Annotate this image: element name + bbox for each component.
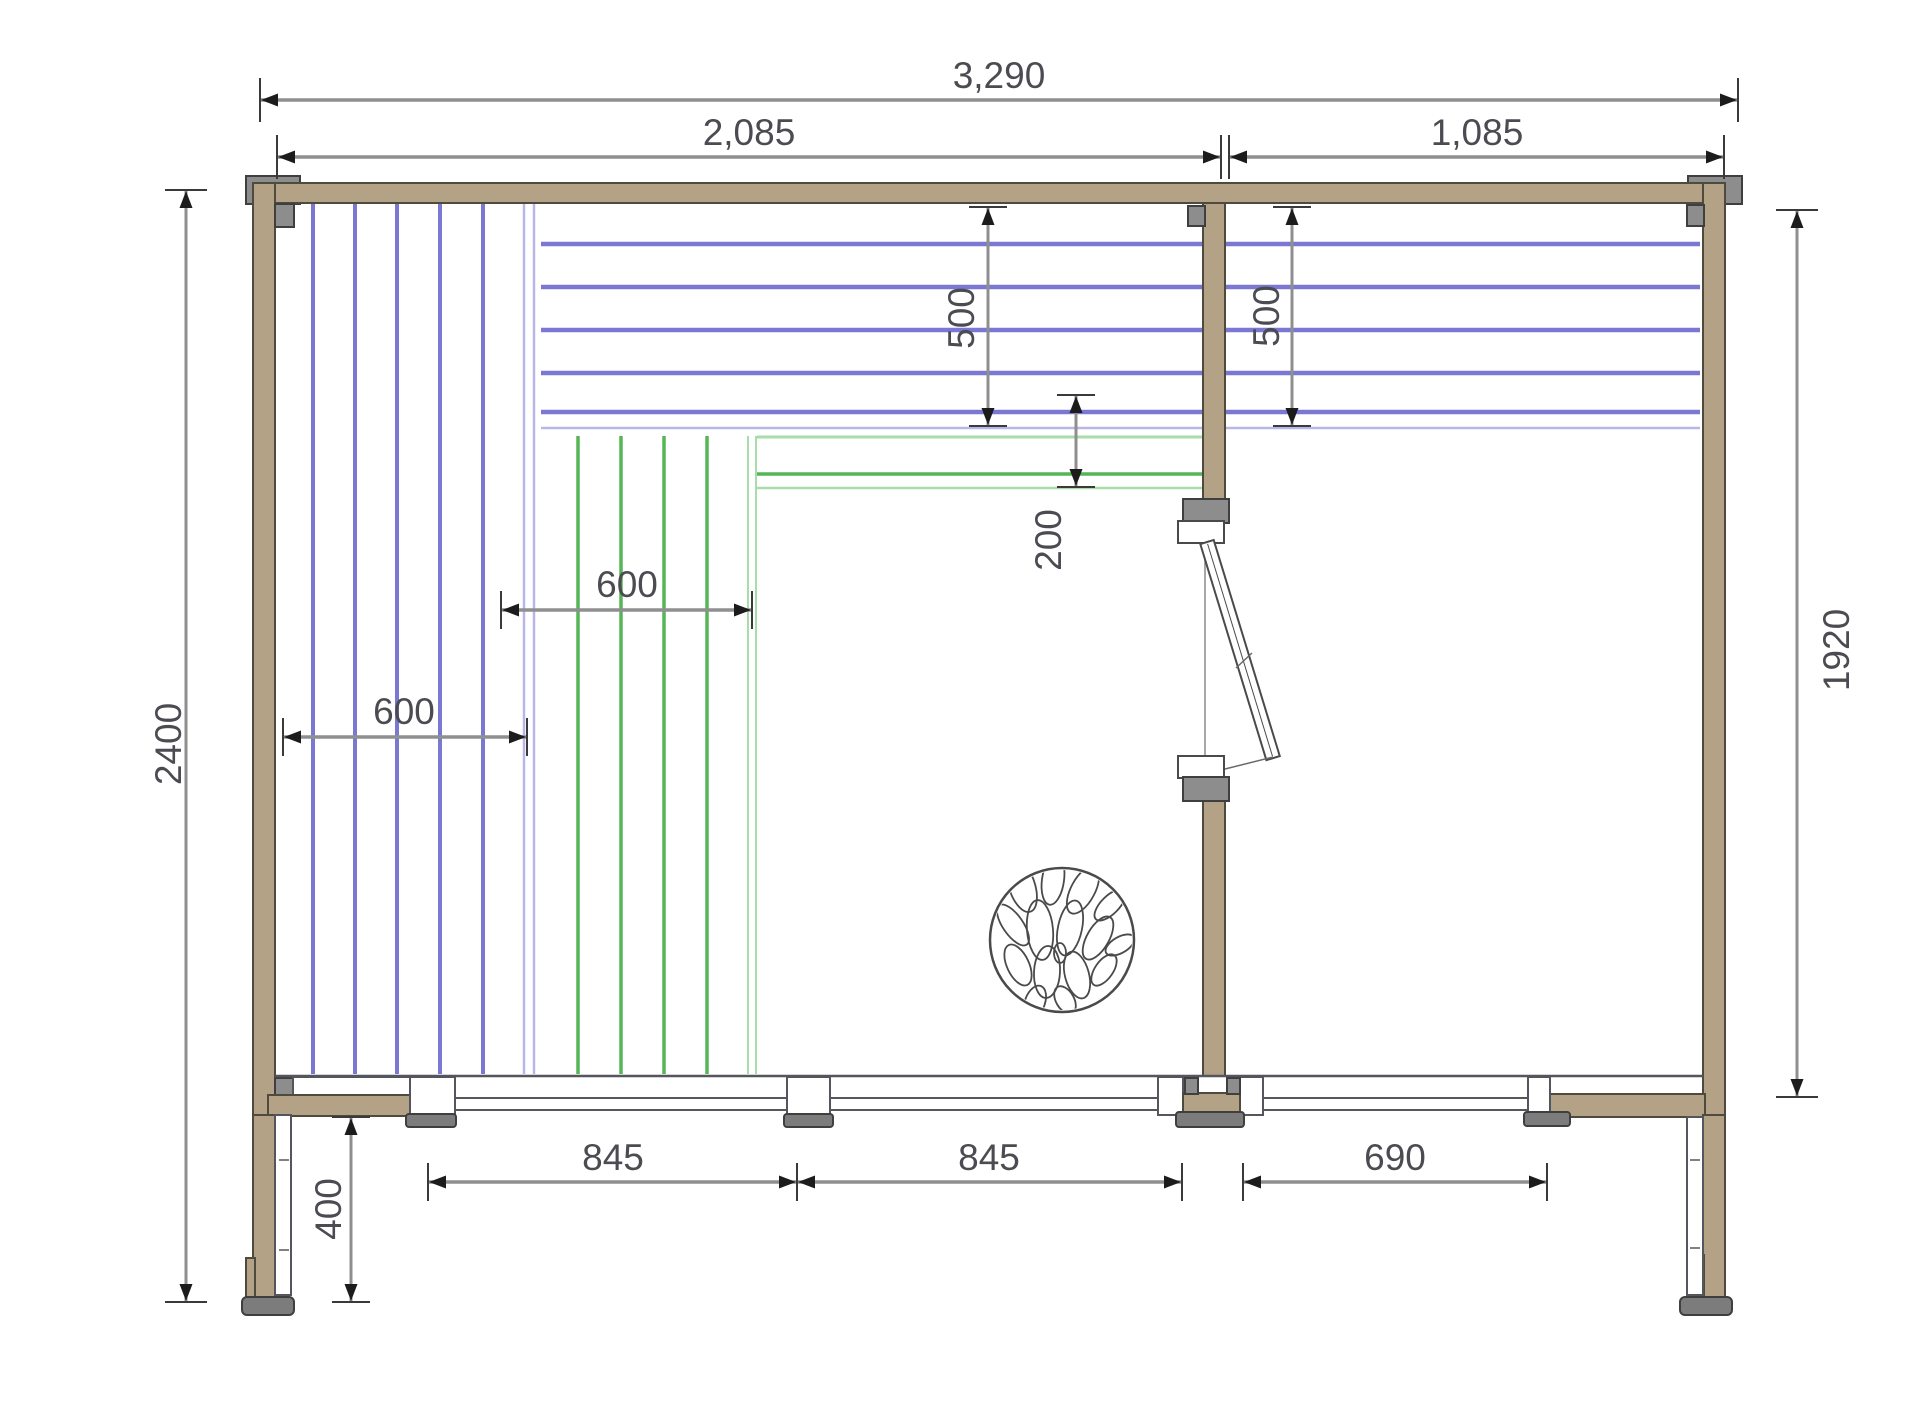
right-foundation-leg — [1703, 1115, 1725, 1300]
dimension-arrowhead — [1791, 211, 1804, 228]
post-partition-top — [1188, 206, 1205, 226]
dimension-arrowhead — [779, 1176, 796, 1189]
dimension-arrowhead — [1286, 408, 1299, 425]
window-post-cap — [406, 1114, 456, 1127]
dimension-arrowhead — [982, 408, 995, 425]
dim-label-total-height: 2400 — [148, 703, 189, 785]
dimension-arrowhead — [180, 1284, 193, 1301]
dimension-arrowhead — [345, 1118, 358, 1135]
post-partition-bottom-right — [1227, 1078, 1240, 1094]
dimension-arrowhead — [1203, 151, 1220, 164]
post-partition-bottom-left — [1185, 1078, 1198, 1094]
floor-plan-drawing: 3,290 2,085 1,085 2400 1920 500 500 200 … — [0, 0, 1920, 1421]
dimension-arrowhead — [798, 1176, 815, 1189]
left-leg-step — [246, 1258, 255, 1300]
bottom-wall-windows — [242, 1076, 1732, 1315]
door-swing-chord — [1217, 757, 1273, 771]
dim-label-right-height: 1920 — [1816, 609, 1857, 691]
door-leaf — [1200, 540, 1279, 760]
heater-stones-circle — [990, 854, 1138, 1022]
dim-label-win-690: 690 — [1364, 1137, 1426, 1178]
dimension-right-height-1920 — [1776, 210, 1818, 1097]
partition-wall-upper — [1203, 203, 1225, 500]
left-foundation-leg — [253, 1115, 275, 1300]
door-frame-top — [1178, 521, 1224, 543]
post-top-right-inner — [1687, 205, 1704, 226]
dimension-arrowhead — [345, 1284, 358, 1301]
wall-structure — [246, 176, 1742, 1115]
dimension-arrowhead — [278, 151, 295, 164]
right-leg-channel — [1687, 1117, 1703, 1295]
partition-wall-lower — [1203, 800, 1225, 1076]
dim-label-base-400: 400 — [308, 1178, 349, 1240]
dimension-arrowhead — [284, 731, 301, 744]
post-bottom-left-inner — [275, 1078, 293, 1096]
dimension-arrowhead — [1706, 151, 1723, 164]
dimension-arrowhead — [1244, 1176, 1261, 1189]
bottom-sill-right — [1550, 1094, 1705, 1117]
dimension-arrowhead — [1164, 1176, 1181, 1189]
dim-label-right-width: 1,085 — [1431, 112, 1524, 153]
right-leg-foot — [1680, 1297, 1732, 1315]
dimension-arrowhead — [180, 191, 193, 208]
dimension-arrowhead — [1070, 396, 1083, 413]
dimension-arrowhead — [261, 94, 278, 107]
dim-label-overall-width: 3,290 — [953, 55, 1046, 96]
left-leg-foot — [242, 1297, 294, 1315]
right-wall — [1703, 183, 1725, 1115]
door-frame-bottom — [1178, 756, 1224, 778]
dimension-arrowhead — [982, 208, 995, 225]
window-post — [787, 1077, 830, 1117]
left-leg-channel — [275, 1115, 291, 1295]
door-assembly — [1178, 499, 1280, 801]
dim-label-right-500: 500 — [1246, 285, 1287, 347]
window-post-cap — [784, 1114, 833, 1127]
dimension-arrowhead — [1286, 208, 1299, 225]
dimension-labels: 3,290 2,085 1,085 2400 1920 500 500 200 … — [148, 55, 1857, 1240]
dim-label-blue-600: 600 — [373, 691, 435, 732]
floor-plan-canvas: 3,290 2,085 1,085 2400 1920 500 500 200 … — [0, 0, 1920, 1421]
top-wall — [253, 183, 1725, 203]
window-post — [1240, 1077, 1263, 1115]
dimension-arrowhead — [1529, 1176, 1546, 1189]
left-wall — [253, 183, 275, 1115]
door-leaf-inner-line — [1208, 544, 1273, 756]
dimension-arrowhead — [1720, 94, 1737, 107]
door-frame-bottom-gray — [1183, 777, 1229, 801]
dimension-arrowhead — [1230, 151, 1247, 164]
dim-label-win-845-left: 845 — [582, 1137, 644, 1178]
partition-bottom-cap — [1176, 1112, 1244, 1127]
dim-label-left-500: 500 — [941, 287, 982, 349]
window-post-cap — [1524, 1112, 1570, 1126]
window-post — [410, 1077, 455, 1117]
dimension-arrowhead — [429, 1176, 446, 1189]
bottom-sill-left — [268, 1095, 428, 1116]
dim-label-win-845-mid: 845 — [958, 1137, 1020, 1178]
post-top-left-inner — [275, 204, 294, 227]
window-post — [1528, 1077, 1550, 1115]
dim-label-green-600: 600 — [596, 564, 658, 605]
dimension-arrowhead — [502, 604, 519, 617]
dim-label-left-width: 2,085 — [703, 112, 796, 153]
dimension-arrowhead — [1791, 1079, 1804, 1096]
door-frame-top-gray — [1183, 499, 1229, 523]
dim-label-depth-200: 200 — [1028, 509, 1069, 571]
window-post — [1158, 1077, 1183, 1115]
dimension-arrowhead — [1070, 469, 1083, 486]
